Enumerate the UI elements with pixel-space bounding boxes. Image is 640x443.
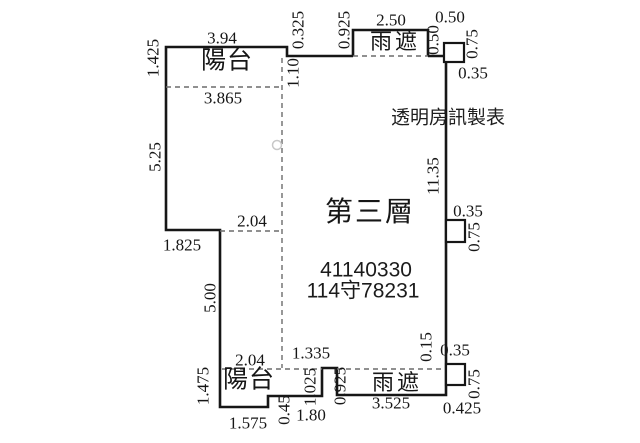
registration-number-1: 41140330 [320, 260, 412, 281]
dimension-label: 0.45 [276, 395, 293, 425]
maker-watermark-label: 透明房訊製表 [391, 109, 505, 128]
dimension-label: 2.50 [376, 12, 406, 29]
dimension-label: 0.925 [336, 11, 353, 49]
dimension-label: 0.35 [458, 65, 488, 82]
dimension-label: 0.75 [466, 369, 483, 399]
dimension-label: 3.94 [207, 30, 237, 47]
dimension-label: 1.80 [296, 407, 326, 424]
dimension-label: 0.15 [418, 332, 435, 362]
dimension-label: 2.04 [237, 213, 267, 230]
dimension-label: 0.50 [425, 25, 442, 55]
floor-plan-lines [0, 0, 640, 443]
column-square [444, 43, 464, 62]
column-square [446, 220, 465, 242]
floor-plan: 3.941.4250.3250.9252.500.500.500.750.351… [0, 0, 640, 443]
dimension-label: 11.35 [425, 157, 442, 195]
dimension-label: 1.825 [163, 237, 201, 254]
dimension-label: 0.75 [464, 29, 481, 59]
floor-title-label: 第三層 [325, 199, 415, 227]
dimension-label: 5.00 [202, 283, 219, 313]
dimension-label: 0.925 [332, 367, 349, 405]
dash-line-marker [273, 141, 282, 150]
dimension-label: 0.425 [443, 400, 481, 417]
dimension-label: 0.75 [466, 222, 483, 252]
dimension-label: 1.10 [285, 58, 302, 88]
dimension-label: 0.35 [453, 203, 483, 220]
dimension-label: 1.475 [195, 367, 212, 405]
dimension-label: 1.025 [302, 368, 319, 406]
dimension-label: 5.25 [147, 142, 164, 172]
room-label-balcony-bottom: 陽台 [223, 368, 275, 393]
canopy-label-top: 雨遮 [370, 31, 420, 53]
dimension-label: 1.425 [145, 39, 162, 77]
column-square [446, 364, 465, 385]
dimension-label: 0.50 [435, 9, 465, 26]
dimension-label: 0.35 [440, 342, 470, 359]
registration-number-2: 114守78231 [307, 281, 420, 302]
canopy-label-bottom: 雨遮 [372, 372, 422, 394]
dimension-label: 0.325 [290, 11, 307, 49]
dimension-label: 3.865 [204, 90, 242, 107]
dimension-label: 1.335 [292, 345, 330, 362]
room-label-balcony-top: 陽台 [201, 49, 253, 74]
dimension-label: 1.575 [229, 415, 267, 432]
dimension-label: 3.525 [372, 395, 410, 412]
